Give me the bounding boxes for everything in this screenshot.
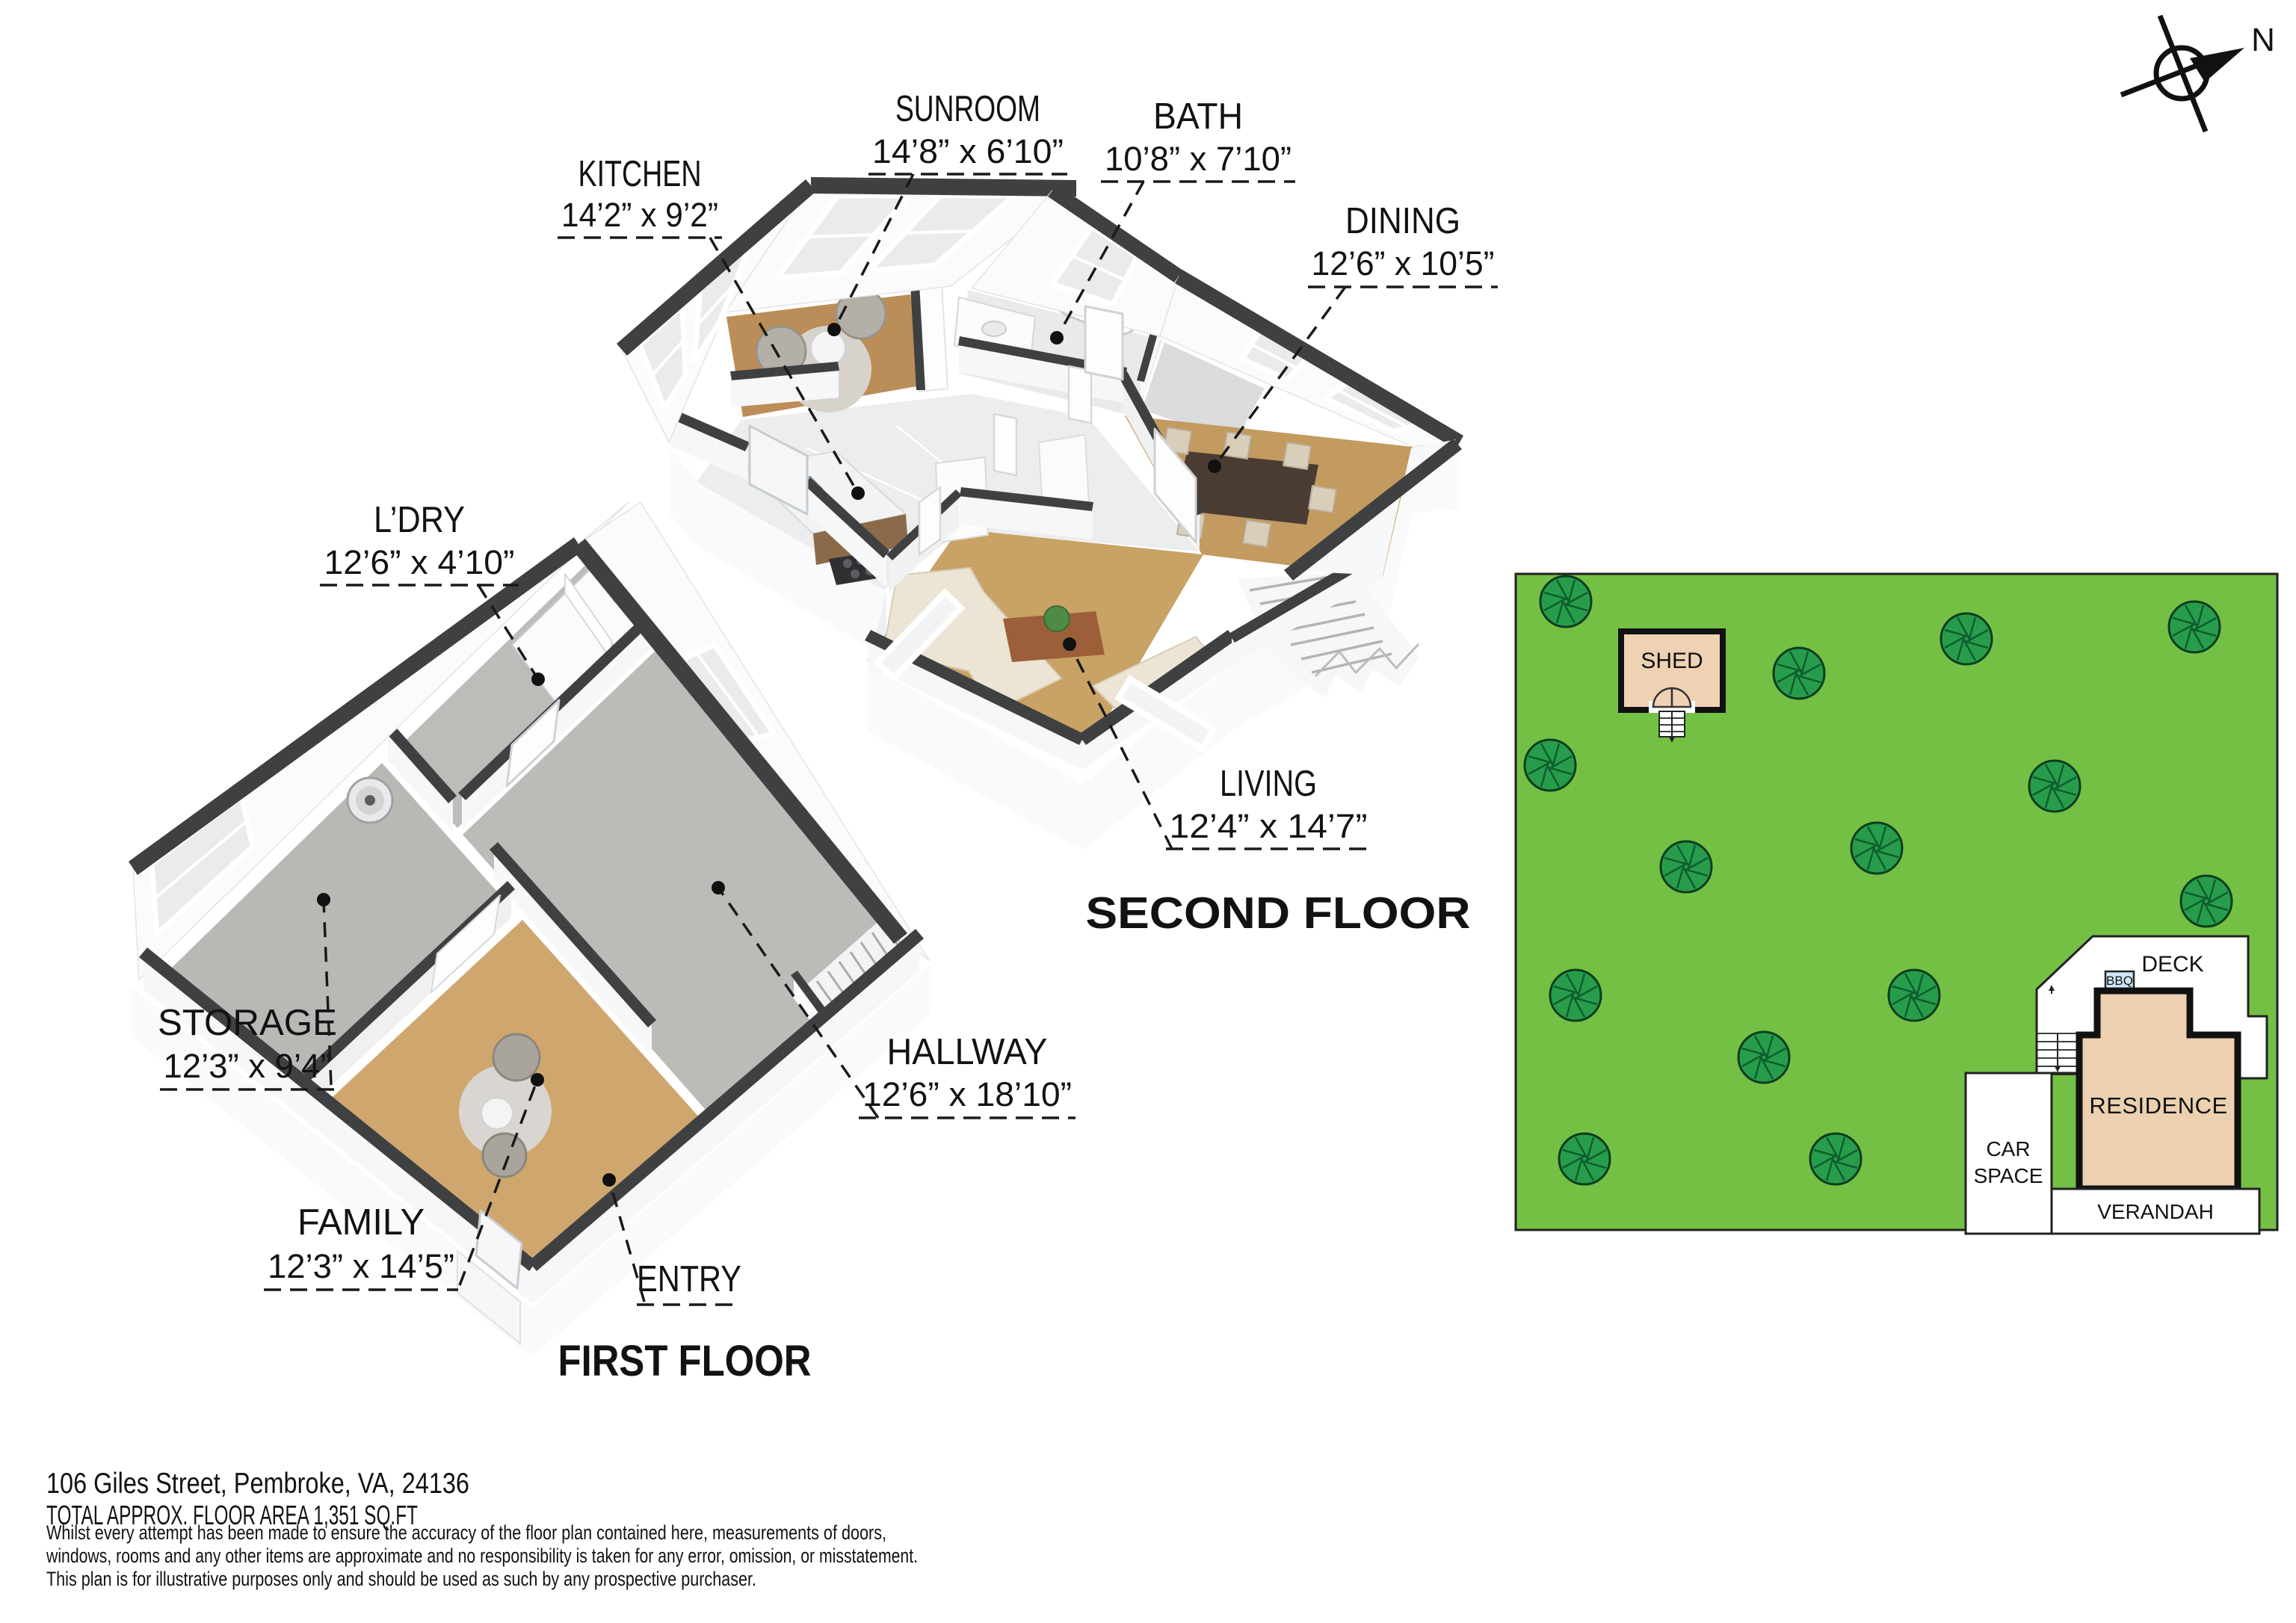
svg-text:12’3” x 14’5”: 12’3” x 14’5” [268, 1247, 454, 1285]
svg-text:BBQ: BBQ [2106, 974, 2133, 988]
svg-text:106 Giles Street, Pembroke, VA: 106 Giles Street, Pembroke, VA, 24136 [46, 1468, 469, 1500]
svg-text:SUNROOM: SUNROOM [895, 89, 1040, 129]
svg-text:STORAGE: STORAGE [158, 1003, 337, 1043]
svg-text:N: N [2251, 22, 2275, 58]
svg-text:This plan is for illustrative: This plan is for illustrative purposes o… [46, 1568, 756, 1590]
svg-text:VERANDAH: VERANDAH [2097, 1200, 2214, 1223]
svg-text:SHED: SHED [1641, 649, 1703, 673]
svg-text:12’6” x 10’5”: 12’6” x 10’5” [1312, 244, 1495, 282]
svg-text:KITCHEN: KITCHEN [578, 154, 702, 194]
svg-text:L’DRY: L’DRY [374, 500, 465, 540]
svg-text:12’4” x 14’7”: 12’4” x 14’7” [1170, 807, 1368, 845]
svg-text:FAMILY: FAMILY [297, 1202, 425, 1243]
svg-text:BATH: BATH [1153, 96, 1243, 137]
svg-text:HALLWAY: HALLWAY [887, 1032, 1048, 1072]
svg-text:14’8” x 6’10”: 14’8” x 6’10” [872, 132, 1064, 170]
svg-text:Whilst every attempt has been: Whilst every attempt has been made to en… [46, 1521, 886, 1544]
svg-text:12’3” x 9’4”: 12’3” x 9’4” [164, 1047, 332, 1085]
svg-text:RESIDENCE: RESIDENCE [2089, 1092, 2227, 1119]
svg-text:FIRST FLOOR: FIRST FLOOR [558, 1337, 812, 1385]
svg-text:12’6” x 4’10”: 12’6” x 4’10” [324, 543, 515, 581]
svg-text:DECK: DECK [2141, 952, 2203, 977]
svg-text:DINING: DINING [1345, 201, 1460, 241]
svg-text:14’2” x 9’2”: 14’2” x 9’2” [561, 196, 718, 234]
svg-text:SECOND FLOOR: SECOND FLOOR [1086, 888, 1471, 938]
svg-text:12’6” x 18’10”: 12’6” x 18’10” [862, 1075, 1072, 1113]
svg-text:windows, rooms and any other i: windows, rooms and any other items are a… [46, 1545, 918, 1567]
svg-text:SPACE: SPACE [1974, 1164, 2043, 1187]
svg-text:10’8” x 7’10”: 10’8” x 7’10” [1105, 140, 1291, 178]
svg-text:CAR: CAR [1986, 1137, 2030, 1160]
svg-text:LIVING: LIVING [1220, 764, 1317, 804]
svg-text:ENTRY: ENTRY [637, 1259, 741, 1299]
